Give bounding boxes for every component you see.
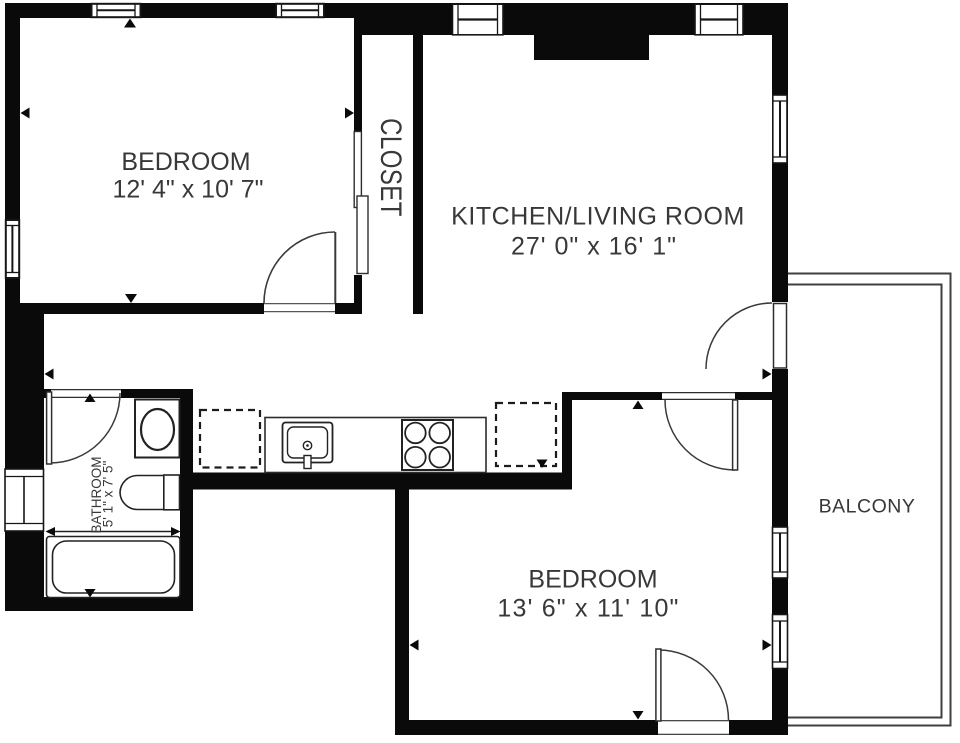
svg-text:BALCONY: BALCONY	[819, 496, 916, 518]
svg-text:12' 4" x 10' 7": 12' 4" x 10' 7"	[112, 176, 263, 204]
svg-text:CLOSET: CLOSET	[374, 118, 407, 217]
svg-text:KITCHEN/LIVING ROOM: KITCHEN/LIVING ROOM	[451, 203, 745, 231]
svg-text:5' 1" x 7' 5": 5' 1" x 7' 5"	[101, 461, 116, 528]
svg-text:13' 6" x 11' 10": 13' 6" x 11' 10"	[497, 595, 679, 623]
svg-text:27' 0" x 16' 1": 27' 0" x 16' 1"	[511, 233, 677, 261]
svg-text:BEDROOM: BEDROOM	[121, 148, 250, 176]
svg-text:BEDROOM: BEDROOM	[528, 566, 657, 594]
